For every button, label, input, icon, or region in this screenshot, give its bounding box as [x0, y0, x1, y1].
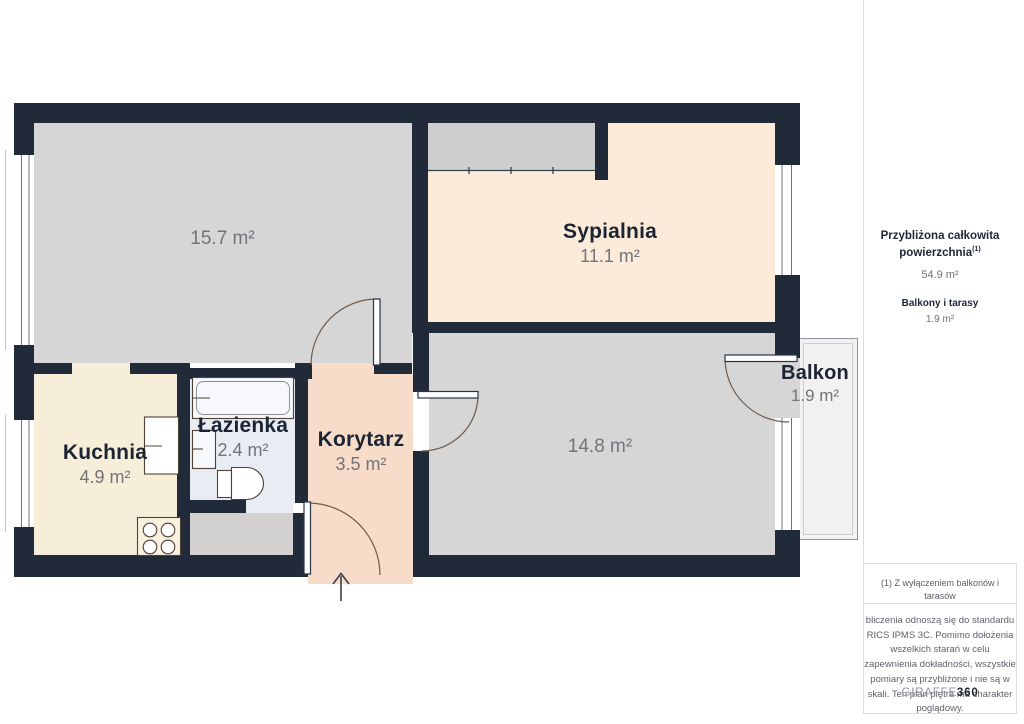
wall-top — [14, 103, 800, 123]
sidebar-divider-1 — [863, 563, 1017, 564]
window-bedroom-right — [775, 165, 800, 275]
bedroom-wardrobe — [428, 123, 595, 171]
wall-stub-door-right — [374, 363, 412, 374]
room-bathroom-floor — [190, 379, 295, 503]
window-balcony-right — [775, 418, 800, 530]
logo-name: GIRAFFE — [901, 687, 956, 699]
balconies-label: Balkony i tarasy — [864, 298, 1016, 309]
room-second-floor — [429, 333, 775, 555]
wall-kitchen-bathroom — [177, 363, 190, 555]
wall-living-bedroom — [412, 123, 428, 323]
wall-living-kitchen-a — [32, 363, 72, 374]
entrance-threshold — [308, 555, 413, 584]
wall-bathroom-corridor — [295, 378, 308, 503]
summary-footnote-ref: (1) — [972, 246, 981, 253]
wall-stub-door-left — [295, 363, 312, 379]
wall-bottom-left — [14, 555, 308, 577]
wall-niche-stub — [190, 500, 246, 513]
window-living-left — [14, 155, 34, 345]
sidebar-divider-2 — [863, 603, 1017, 604]
balconies-area-value: 1.9 m² — [864, 314, 1016, 325]
giraffe360-logo: GIRAFFE360 — [864, 687, 1016, 699]
balcony-inner-frame — [803, 343, 853, 535]
room-corridor-floor — [308, 374, 413, 555]
summary-title-text: Przybliżona całkowita powierzchnia — [881, 230, 1000, 259]
sidebar-right-border — [1016, 563, 1017, 713]
wall-wardrobe-stub — [595, 123, 608, 180]
wall-corridor-room-b — [413, 451, 429, 555]
room-kitchen-floor — [34, 374, 177, 555]
corridor-doorway — [312, 363, 374, 374]
summary-title: Przybliżona całkowita powierzchnia(1) — [864, 228, 1016, 263]
kitchen-doorway — [72, 363, 130, 374]
window-kitchen-left — [14, 420, 34, 527]
wall-living-kitchen-b — [130, 363, 180, 374]
wall-bedroom-room — [412, 322, 775, 333]
footnote: (1) Z wyłączeniem balkonów i tarasów — [864, 577, 1016, 602]
room-living-floor — [34, 123, 412, 363]
wall-bottom-right — [413, 555, 800, 577]
storage-niche-floor — [190, 513, 293, 555]
floor-plan-page: 15.7 m² Sypialnia 11.1 m² Kuchnia 4.9 m²… — [0, 0, 1024, 724]
total-area-value: 54.9 m² — [864, 269, 1016, 281]
wall-niche-right — [293, 513, 308, 555]
area-summary: Przybliżona całkowita powierzchnia(1) 54… — [864, 228, 1016, 325]
sidebar-left-border — [863, 0, 864, 713]
logo-suffix: 360 — [957, 687, 979, 699]
wall-bathroom-top — [190, 368, 308, 379]
bathroom-niche-gap — [246, 500, 293, 513]
balcony-door-gap — [775, 358, 800, 418]
wall-corridor-room-a — [413, 333, 429, 392]
disclaimer: bliczenia odnoszą się do standardu RICS … — [864, 614, 1016, 717]
